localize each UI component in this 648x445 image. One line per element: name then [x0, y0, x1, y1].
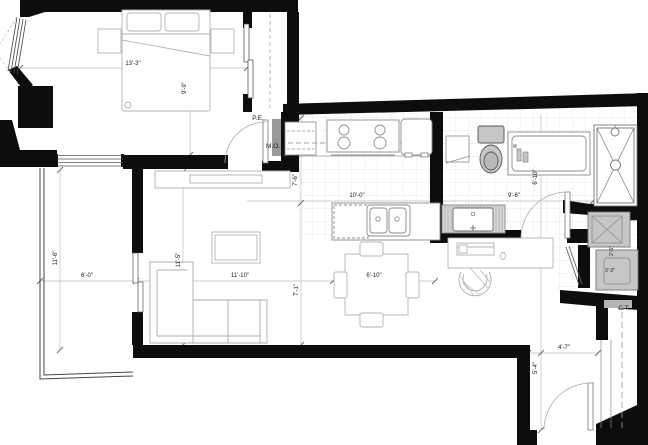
shower-head-icon	[611, 128, 619, 136]
dim-entry-depth: 5'-4"	[533, 362, 539, 374]
kitchen-island	[332, 203, 440, 240]
label-corridor: C.T.	[618, 305, 630, 312]
dim-bath-depth: 6'-10"	[533, 169, 539, 184]
bathtub	[508, 132, 590, 175]
dim-bath-width: 9'-6"	[508, 193, 520, 199]
shower	[594, 125, 637, 206]
bath-cabinet	[446, 136, 470, 163]
dim-living-width: 11'-10"	[231, 273, 249, 279]
bedroom-door	[225, 120, 268, 163]
dim-dining-width: 6'-10"	[366, 273, 381, 279]
dim-living-to-wall: 7'-1"	[294, 284, 300, 296]
dim-kitchen-width: 10'-0"	[349, 193, 364, 199]
dim-kitchen-depth: 7'-6"	[293, 174, 299, 186]
dim-balcony-width: 6'-0"	[81, 273, 93, 279]
dim-entry-width: 4'-7"	[558, 345, 570, 351]
entry-door	[544, 383, 593, 430]
dim-bedroom-depth: 9'-9"	[182, 82, 188, 94]
tv-console	[155, 171, 290, 188]
balcony-sliding-door	[133, 253, 143, 312]
dim-laundry-width: 3'-3"	[605, 268, 615, 274]
bedroom-balcony-window	[55, 154, 124, 167]
fridge	[401, 119, 432, 157]
dim-laundry-depth: 2'-5"	[609, 246, 615, 256]
desk	[448, 238, 553, 268]
dim-living-depth: 11'-5"	[176, 253, 182, 268]
dining-table	[334, 242, 419, 327]
desk-chair	[459, 268, 491, 296]
floor-plan-drawing: 13'-3" 9'-9" 7'-6" 10'-0" 9'-6" 6'-10" 1…	[0, 0, 648, 445]
dim-bedroom-width: 13'-3"	[125, 61, 140, 67]
label-entry-closet: P.E.	[252, 115, 264, 122]
closet-door-panel	[272, 119, 281, 156]
double-sink	[367, 205, 410, 236]
coffee-table	[212, 232, 260, 263]
microwave-cabinet	[285, 122, 316, 155]
vanity-sink	[442, 205, 505, 233]
label-microwave: M.O.	[266, 143, 280, 150]
stove	[327, 120, 399, 155]
floor-plan: 13'-3" 9'-9" 7'-6" 10'-0" 9'-6" 6'-10" 1…	[0, 0, 648, 445]
sofa	[150, 262, 267, 343]
dim-balcony-depth: 11'-6"	[53, 251, 59, 266]
